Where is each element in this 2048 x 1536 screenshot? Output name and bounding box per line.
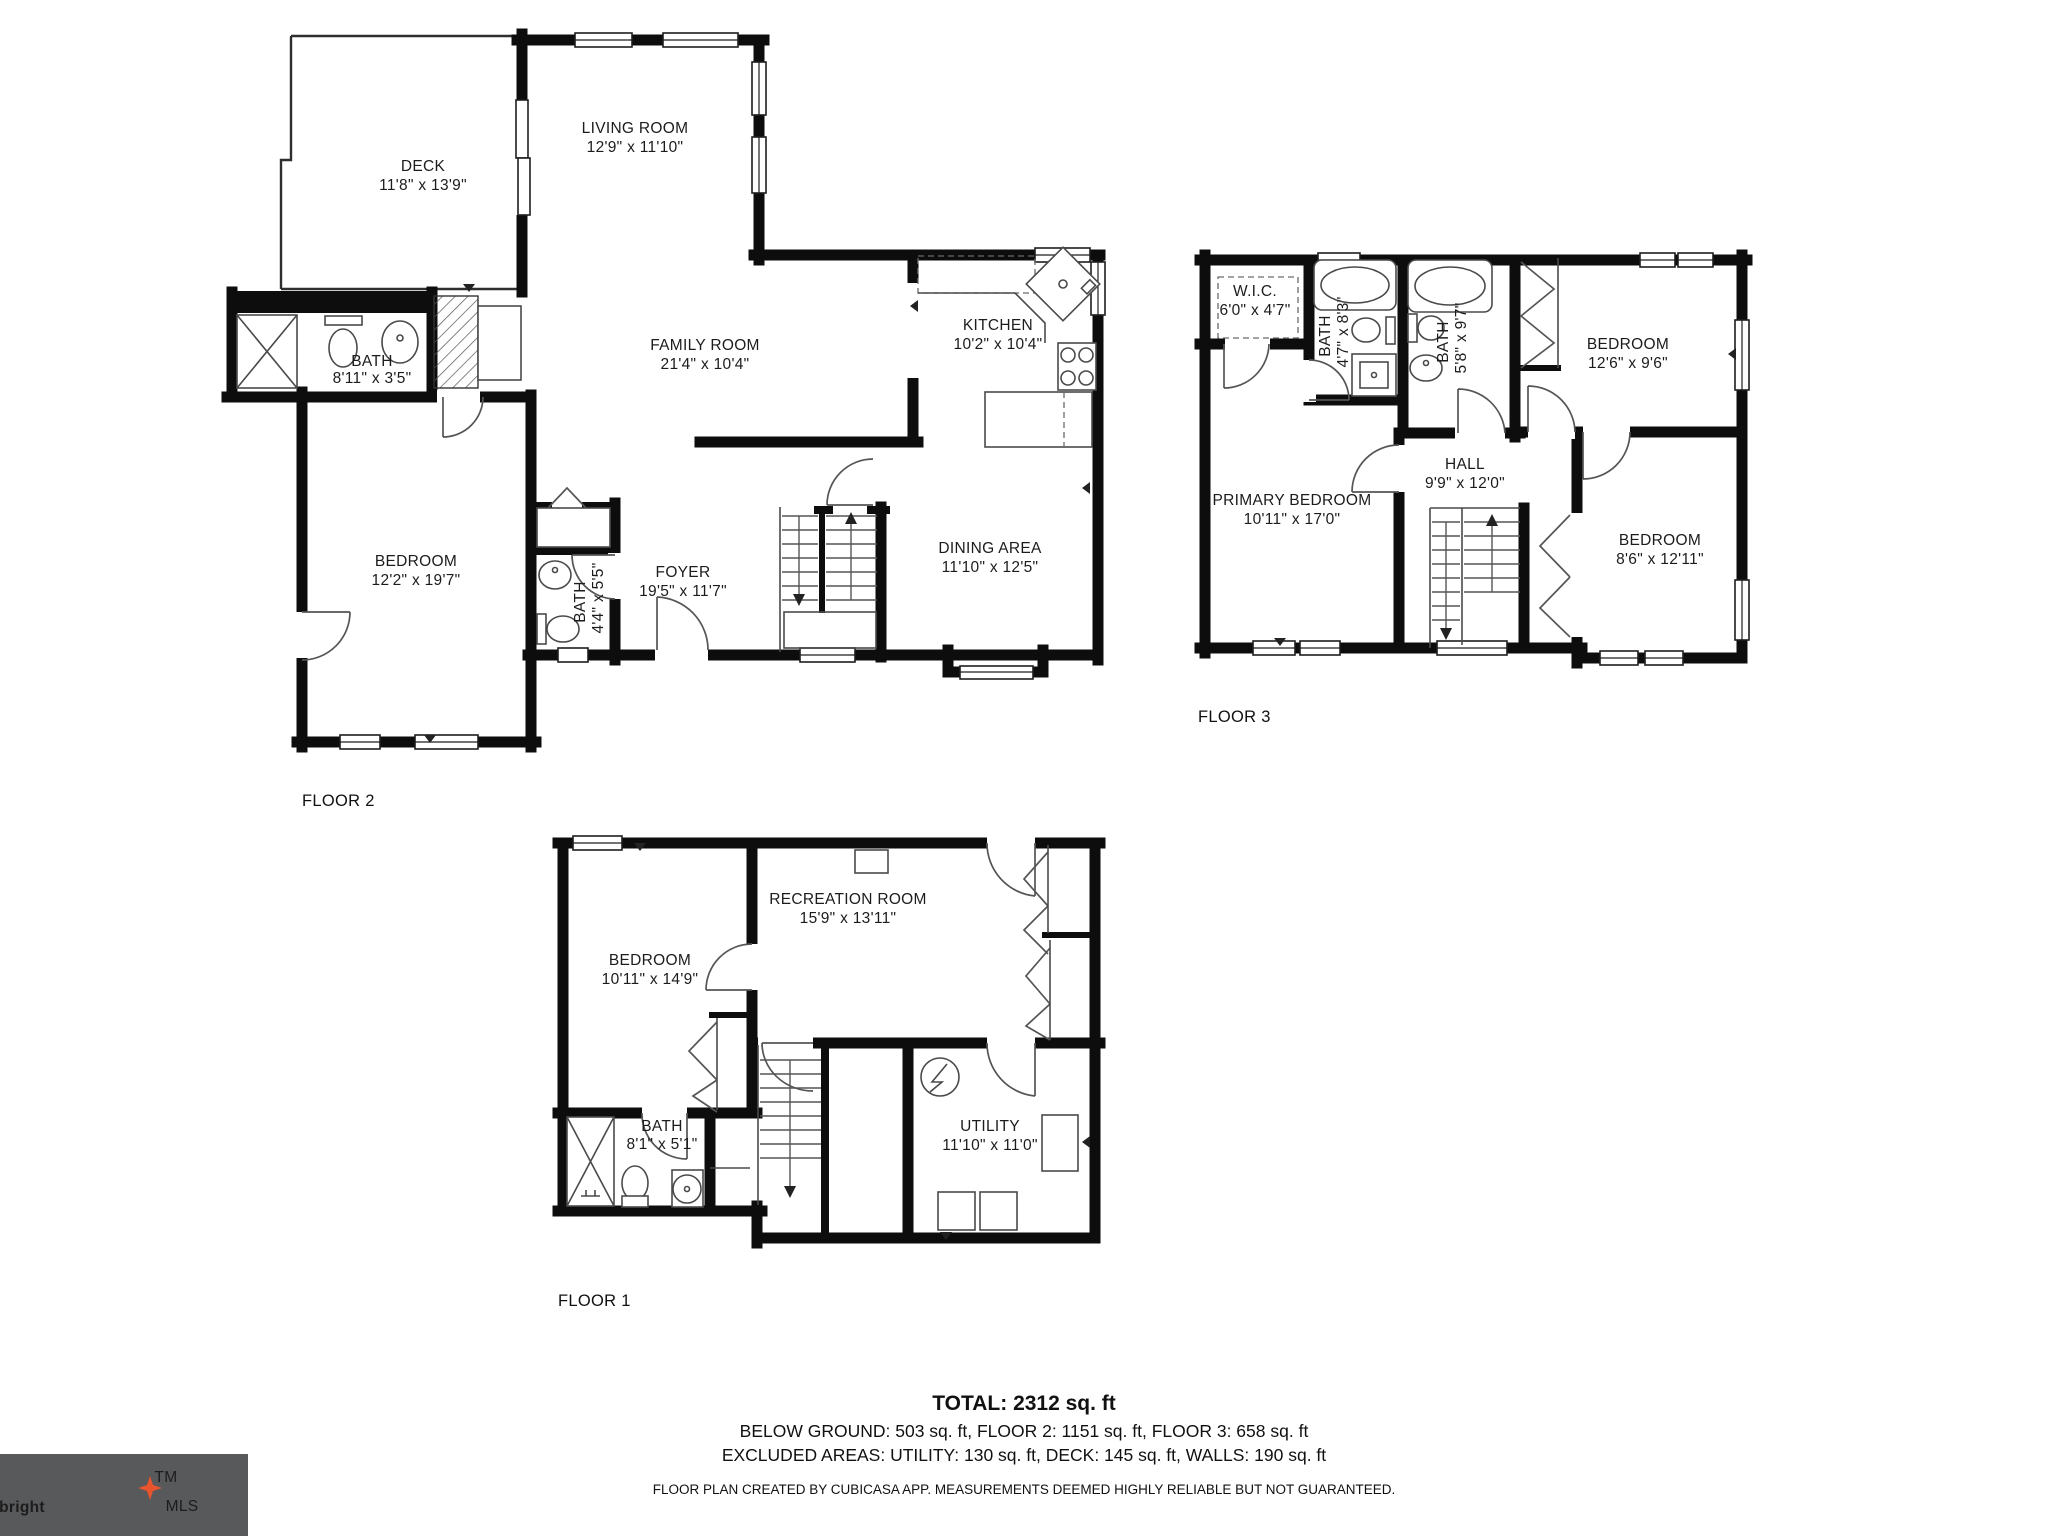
logo-suffix-text: MLS <box>166 1498 199 1515</box>
room-dims-utility: 11'10" x 11'0" <box>942 1137 1038 1154</box>
room-label-recreation: RECREATION ROOM <box>769 891 927 908</box>
room-dims-hall: 9'9" x 12'0" <box>1425 475 1505 492</box>
room-label-deck: DECK <box>401 158 446 175</box>
room-label-bath-left-f3: BATH <box>1317 315 1334 356</box>
room-label-bedroom-bottom-f3: BEDROOM <box>1619 532 1701 549</box>
fireplace <box>434 296 478 388</box>
floorplan-canvas: DECK 11'8" x 13'9" LIVING ROOM 12'9" x 1… <box>0 0 2048 1536</box>
logo-brand-text: bright <box>0 1499 45 1516</box>
floor2-label: FLOOR 2 <box>302 792 375 810</box>
logo-background <box>0 1454 248 1536</box>
room-dims-recreation: 15'9" x 13'11" <box>800 910 897 927</box>
floor-areas-text: BELOW GROUND: 503 sq. ft, FLOOR 2: 1151 … <box>0 1421 2048 1442</box>
room-label-dining: DINING AREA <box>938 540 1042 557</box>
room-dims-bath-f1: 8'1" x 5'1" <box>626 1136 697 1153</box>
room-dims-deck: 11'8" x 13'9" <box>379 177 467 194</box>
room-dims-bedroom-f1: 10'11" x 14'9" <box>602 971 699 988</box>
floor3-plan: W.I.C. 6'0" x 4'7" BATH 4'7" x 8'3" BATH… <box>1198 253 1749 726</box>
room-label-hall: HALL <box>1445 456 1485 473</box>
room-dims-bath-small: 4'4" x 5'5" <box>590 562 607 633</box>
floor1-stairs <box>758 1045 821 1205</box>
room-label-foyer: FOYER <box>656 564 711 581</box>
floor1-label: FLOOR 1 <box>558 1292 631 1310</box>
room-label-living: LIVING ROOM <box>582 120 689 137</box>
deck-outline <box>281 36 517 289</box>
room-dims-bath-left-f3: 4'7" x 8'3" <box>1335 296 1352 367</box>
brightmls-logo-svg: bright TM MLS <box>0 1454 248 1536</box>
room-dims-primary: 10'11" x 17'0" <box>1244 511 1341 528</box>
room-dims-kitchen: 10'2" x 10'4" <box>954 336 1043 353</box>
room-dims-bedroom-top-f3: 12'6" x 9'6" <box>1588 355 1668 372</box>
floor1-openings <box>642 836 1035 1120</box>
room-label-bedroom-f1: BEDROOM <box>609 952 691 969</box>
room-label-bath-f2: BATH <box>351 353 392 370</box>
room-dims-bath-right-f3: 5'8" x 9'7" <box>1453 302 1470 373</box>
room-dims-bedroom-bottom-f3: 8'6" x 12'11" <box>1616 551 1704 568</box>
room-label-bedroom-top-f3: BEDROOM <box>1587 336 1669 353</box>
disclaimer-text: FLOOR PLAN CREATED BY CUBICASA APP. MEAS… <box>0 1482 2048 1497</box>
room-label-bath-f1: BATH <box>641 1118 682 1135</box>
floor3-label: FLOOR 3 <box>1198 708 1271 726</box>
room-label-bath-small: BATH <box>572 581 589 622</box>
room-dims-wic: 6'0" x 4'7" <box>1219 302 1290 319</box>
floor2-stairs <box>780 507 877 652</box>
room-dims-living: 12'9" x 11'10" <box>587 139 684 156</box>
logo-tm: TM <box>155 1469 178 1486</box>
room-label-bedroom-f2: BEDROOM <box>375 553 457 570</box>
floor3-windows <box>1253 253 1749 665</box>
room-label-kitchen: KITCHEN <box>963 317 1033 334</box>
room-label-primary: PRIMARY BEDROOM <box>1213 492 1372 509</box>
room-label-wic: W.I.C. <box>1233 283 1277 300</box>
floor3-stairs <box>1430 508 1520 648</box>
room-dims-dining: 11'10" x 12'5" <box>942 559 1039 576</box>
room-dims-bath-f2: 8'11" x 3'5" <box>333 370 412 387</box>
room-label-bath-right-f3: BATH <box>1435 321 1452 362</box>
room-label-family: FAMILY ROOM <box>650 337 760 354</box>
floor1-plan: BEDROOM 10'11" x 14'9" RECREATION ROOM 1… <box>558 836 1100 1310</box>
room-dims-foyer: 19'5" x 11'7" <box>639 583 727 600</box>
floor2-plan: DECK 11'8" x 13'9" LIVING ROOM 12'9" x 1… <box>227 33 1105 810</box>
floor1-windows <box>573 836 622 850</box>
water-heater <box>921 1058 959 1096</box>
room-label-utility: UTILITY <box>960 1118 1020 1135</box>
excluded-areas-text: EXCLUDED AREAS: UTILITY: 130 sq. ft, DEC… <box>0 1445 2048 1466</box>
room-dims-bedroom-f2: 12'2" x 19'7" <box>372 572 461 589</box>
room-dims-family: 21'4" x 10'4" <box>661 356 750 373</box>
total-area-text: TOTAL: 2312 sq. ft <box>0 1392 2048 1416</box>
